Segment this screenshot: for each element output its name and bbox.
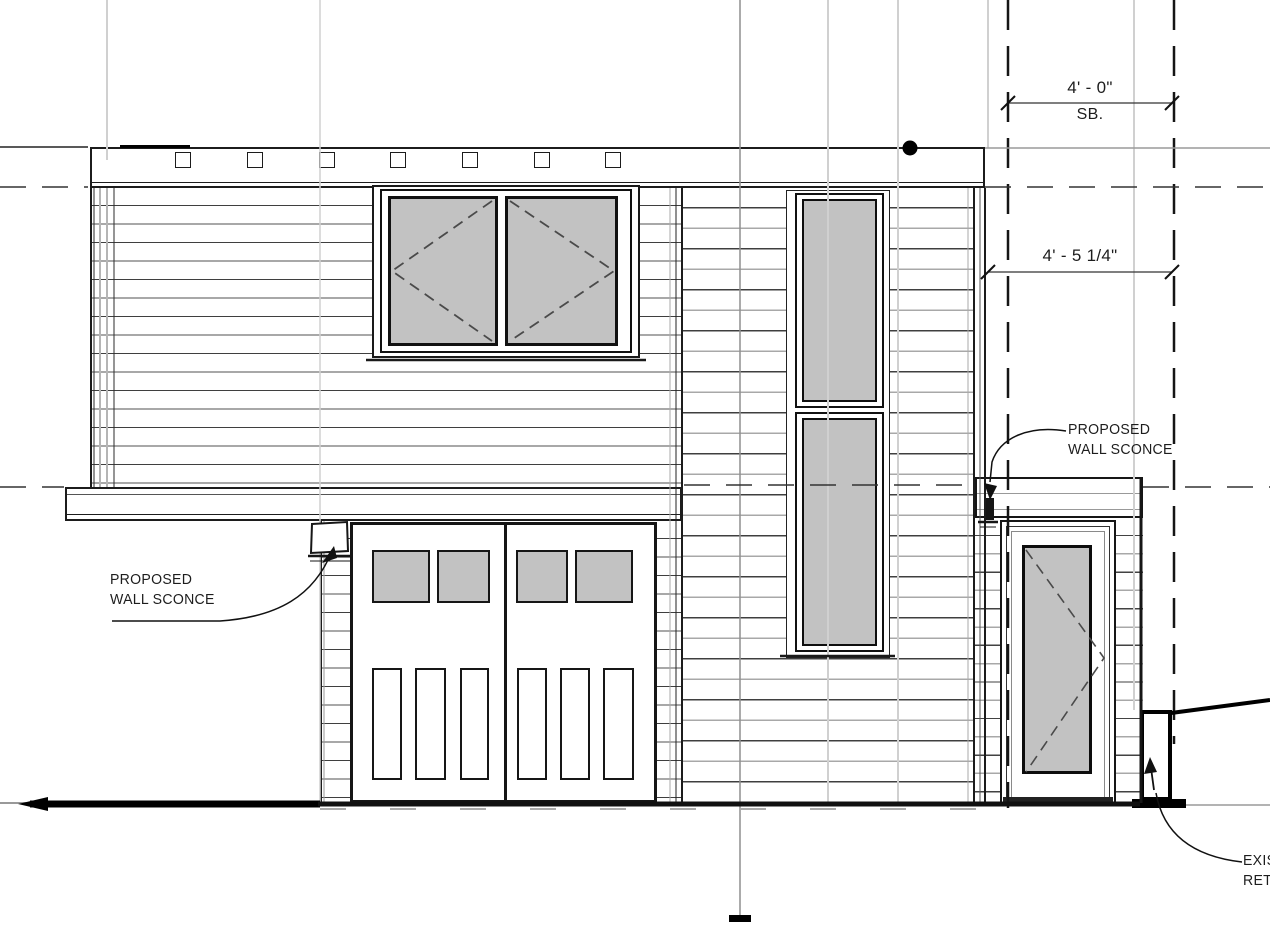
garage-door-panel bbox=[460, 668, 489, 780]
retaining-wall bbox=[1140, 710, 1172, 801]
floor-band-line bbox=[67, 514, 680, 515]
callout-line: PROPOSED bbox=[1068, 420, 1173, 440]
garage-wall-right-strip bbox=[657, 521, 682, 803]
roof-anchor bbox=[247, 152, 263, 168]
grade-arrow-icon bbox=[18, 797, 48, 811]
garage-door-window bbox=[516, 550, 568, 603]
retaining-wall-base bbox=[1132, 799, 1186, 808]
garage-door-panel bbox=[415, 668, 446, 780]
upper-window-sash-left bbox=[388, 196, 498, 346]
retaining-callout: EXIST RETAI bbox=[1243, 851, 1270, 891]
callout-line: EXIST bbox=[1243, 851, 1270, 871]
garage-door-panel bbox=[372, 668, 402, 780]
entry-roof-band bbox=[975, 477, 1143, 518]
parapet-inner-line bbox=[92, 182, 983, 183]
centerline-tick bbox=[729, 915, 751, 922]
sconce-callout-left: PROPOSED WALL SCONCE bbox=[110, 570, 215, 610]
setback-dimension: 4' - 0" bbox=[1008, 78, 1172, 98]
garage-door-panel bbox=[603, 668, 634, 780]
callout-line: WALL SCONCE bbox=[1068, 440, 1173, 460]
garage-door-panel bbox=[517, 668, 547, 780]
leader-sconce-right bbox=[990, 430, 1066, 482]
sconce-callout-right: PROPOSED WALL SCONCE bbox=[1068, 420, 1173, 460]
floor-band bbox=[65, 487, 682, 521]
garage-door-window bbox=[437, 550, 490, 603]
tall-window-lower-glass bbox=[802, 418, 877, 646]
entry-door-glass bbox=[1022, 545, 1092, 774]
roof-anchor bbox=[534, 152, 550, 168]
garage-door-divider bbox=[504, 525, 507, 800]
entry-door-threshold bbox=[1003, 797, 1113, 802]
side-dimension: 4' - 5 1/4" bbox=[988, 246, 1172, 266]
callout-line: RETAI bbox=[1243, 871, 1270, 891]
callout-line: PROPOSED bbox=[110, 570, 215, 590]
elevation-drawing: 4' - 0" SB. 4' - 5 1/4" PROPOSED WALL SC… bbox=[0, 0, 1270, 926]
upper-window-sash-right bbox=[505, 196, 618, 346]
roof-anchor bbox=[390, 152, 406, 168]
parapet-cap-segment bbox=[120, 145, 190, 148]
garage-door-panel bbox=[560, 668, 590, 780]
entry-roof-band-line bbox=[977, 509, 1141, 510]
callout-line: WALL SCONCE bbox=[110, 590, 215, 610]
roof-anchor bbox=[319, 152, 335, 168]
floor-band-line bbox=[67, 494, 680, 495]
roof-anchor bbox=[175, 152, 191, 168]
entry-roof-band-line bbox=[977, 493, 1141, 494]
tall-window-upper-glass bbox=[802, 199, 877, 402]
garage-door-window bbox=[575, 550, 633, 603]
grade-slope-line bbox=[1171, 700, 1270, 713]
garage-wall-left-strip bbox=[320, 521, 350, 803]
garage-door-window bbox=[372, 550, 430, 603]
roof-anchor bbox=[605, 152, 621, 168]
roof-anchor bbox=[462, 152, 478, 168]
setback-label: SB. bbox=[1008, 106, 1172, 124]
